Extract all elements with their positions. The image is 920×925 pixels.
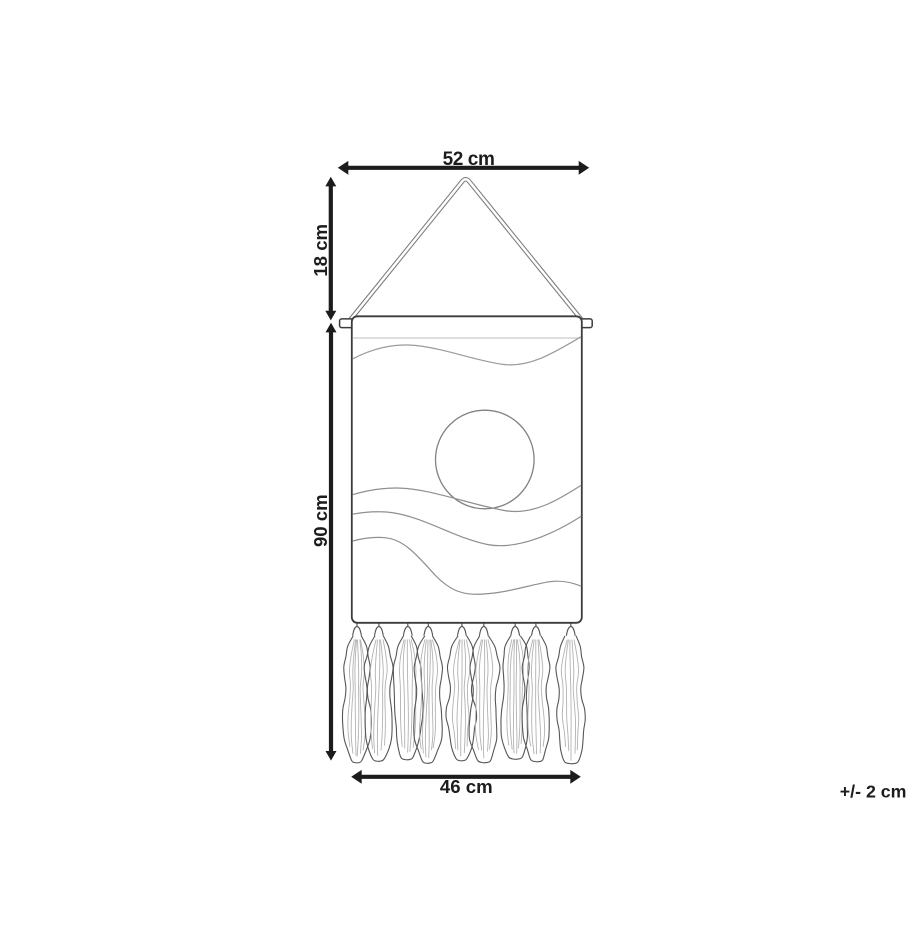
svg-text:18 cm: 18 cm bbox=[310, 224, 331, 277]
svg-text:46 cm: 46 cm bbox=[440, 776, 493, 797]
svg-text:+/- 2 cm: +/- 2 cm bbox=[840, 781, 907, 801]
svg-text:52 cm: 52 cm bbox=[443, 149, 495, 170]
svg-text:90 cm: 90 cm bbox=[310, 494, 331, 547]
